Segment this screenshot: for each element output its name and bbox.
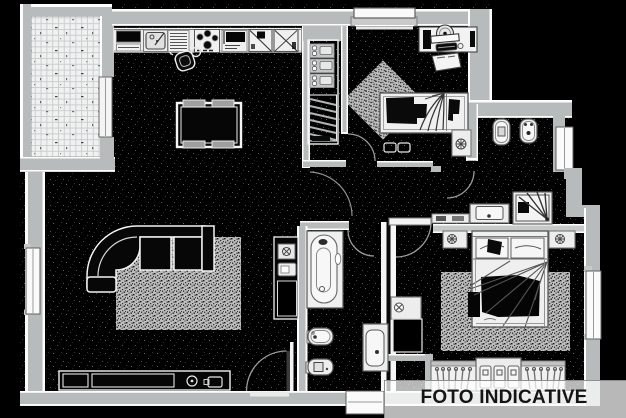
svg-text:FOTO INDICATIVE: FOTO INDICATIVE [421,387,588,408]
